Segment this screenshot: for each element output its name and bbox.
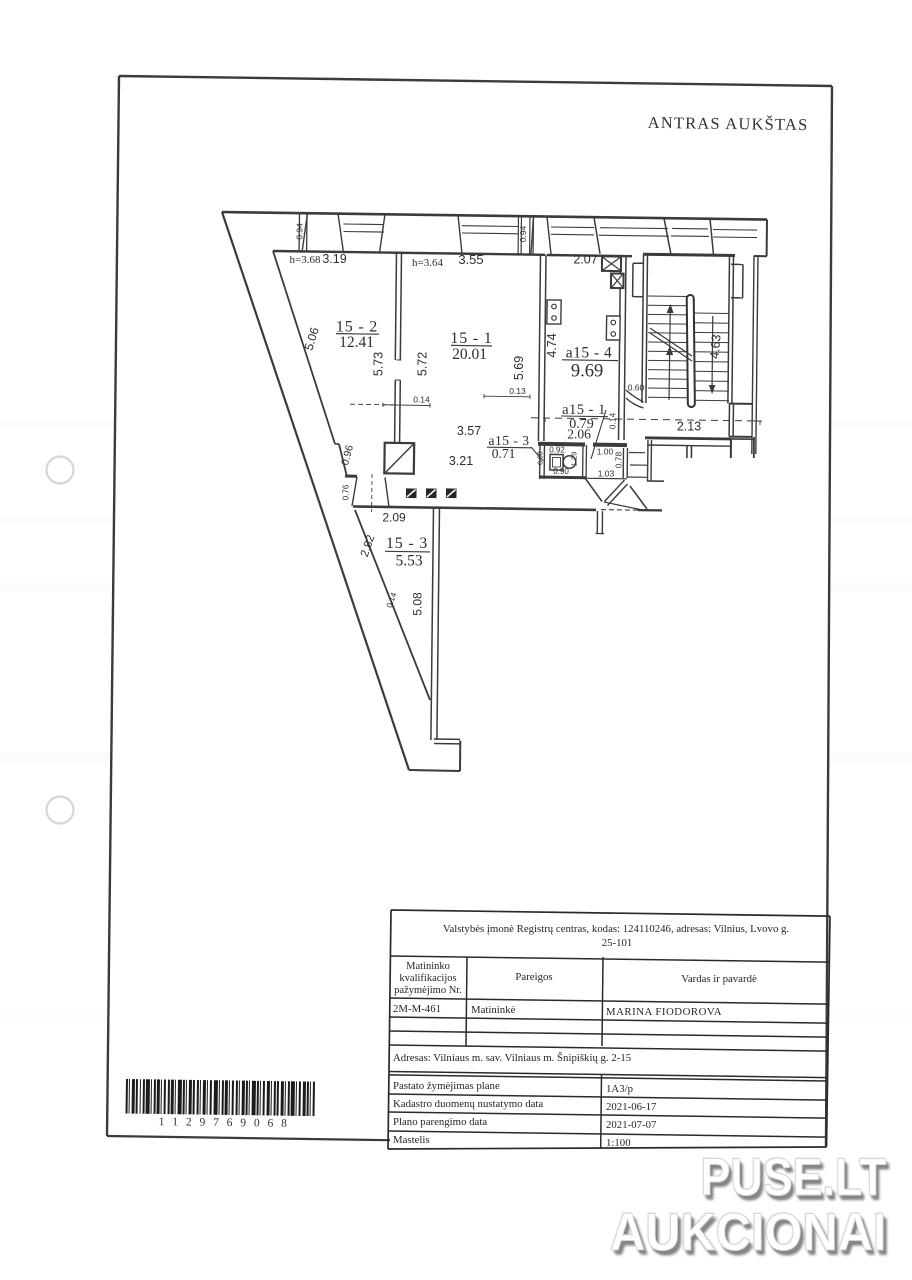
svg-text:0.94: 0.94 xyxy=(294,223,304,240)
svg-text:Matininko: Matininko xyxy=(406,961,450,972)
svg-text:2.13: 2.13 xyxy=(677,420,701,434)
svg-text:1 1 2 9 7 6 9 0 6 8: 1 1 2 9 7 6 9 0 6 8 xyxy=(159,1116,290,1130)
svg-text:15 - 2: 15 - 2 xyxy=(336,319,378,336)
svg-text:1A3/p: 1A3/p xyxy=(606,1083,633,1095)
svg-text:h=3.64: h=3.64 xyxy=(412,257,443,269)
svg-text:3.21: 3.21 xyxy=(449,454,473,468)
svg-text:0.14: 0.14 xyxy=(608,412,618,429)
svg-text:MARINA FIODOROVA: MARINA FIODOROVA xyxy=(606,1006,722,1018)
svg-text:2M-M-461: 2M-M-461 xyxy=(393,1003,441,1015)
svg-text:15 - 1: 15 - 1 xyxy=(450,330,492,347)
svg-text:5.69: 5.69 xyxy=(512,356,526,380)
svg-text:Mastelis: Mastelis xyxy=(393,1134,430,1146)
svg-text:0.71: 0.71 xyxy=(492,446,516,461)
svg-text:2.07: 2.07 xyxy=(573,253,597,267)
svg-text:3.19: 3.19 xyxy=(322,252,346,266)
svg-text:1.00: 1.00 xyxy=(597,447,614,457)
svg-text:12.41: 12.41 xyxy=(339,334,374,351)
svg-text:Pastato žymėjimas plane: Pastato žymėjimas plane xyxy=(393,1080,500,1092)
svg-text:Matininkė: Matininkė xyxy=(471,1004,516,1016)
svg-text:Valstybės įmonė Registrų centr: Valstybės įmonė Registrų centras, kodas:… xyxy=(443,923,789,935)
svg-text:0.90: 0.90 xyxy=(538,451,545,465)
svg-text:0.94: 0.94 xyxy=(518,225,528,242)
svg-text:kvalifikacijos: kvalifikacijos xyxy=(399,973,456,984)
svg-text:Plano parengimo data: Plano parengimo data xyxy=(393,1116,487,1128)
svg-text:h=3.68: h=3.68 xyxy=(290,254,321,266)
svg-text:1:100: 1:100 xyxy=(606,1137,631,1149)
svg-text:0.76: 0.76 xyxy=(342,484,351,500)
svg-text:5.72: 5.72 xyxy=(416,352,430,376)
svg-text:pažymėjimo Nr.: pažymėjimo Nr. xyxy=(394,985,462,996)
svg-text:1.29: 1.29 xyxy=(570,452,579,467)
svg-text:2021-07-07: 2021-07-07 xyxy=(606,1119,657,1131)
svg-text:Kadastro duomenų nustatymo dat: Kadastro duomenų nustatymo data xyxy=(393,1098,543,1110)
svg-text:0.92: 0.92 xyxy=(549,446,565,455)
svg-text:Adresas: Vilniaus m. sav. Viln: Adresas: Vilniaus m. sav. Vilniaus m. Šn… xyxy=(393,1052,631,1064)
svg-text:5.08: 5.08 xyxy=(411,592,425,616)
svg-text:a15 - 4: a15 - 4 xyxy=(566,345,613,362)
svg-text:Vardas ir pavardė: Vardas ir pavardė xyxy=(681,973,757,985)
svg-text:0.13: 0.13 xyxy=(509,386,526,396)
svg-text:2021-06-17: 2021-06-17 xyxy=(606,1101,657,1113)
svg-text:0.78: 0.78 xyxy=(614,451,624,468)
svg-text:1.03: 1.03 xyxy=(598,469,615,479)
svg-text:5.53: 5.53 xyxy=(395,553,422,570)
svg-text:25-101: 25-101 xyxy=(602,937,633,949)
svg-text:4.63: 4.63 xyxy=(707,334,723,360)
svg-text:Pareigos: Pareigos xyxy=(515,971,552,983)
svg-text:20.01: 20.01 xyxy=(452,346,487,363)
svg-text:4.74: 4.74 xyxy=(545,333,559,357)
svg-text:3.57: 3.57 xyxy=(457,424,481,438)
svg-text:15 - 3: 15 - 3 xyxy=(386,535,428,552)
svg-text:9.69: 9.69 xyxy=(571,362,603,382)
svg-text:5.73: 5.73 xyxy=(372,352,386,376)
svg-text:3.55: 3.55 xyxy=(458,252,483,267)
svg-text:0.14: 0.14 xyxy=(413,395,430,405)
svg-text:ANTRAS AUKŠTAS: ANTRAS AUKŠTAS xyxy=(648,113,809,134)
svg-text:0.60: 0.60 xyxy=(628,383,645,393)
svg-text:2.09: 2.09 xyxy=(382,511,406,525)
svg-text:2.06: 2.06 xyxy=(567,427,591,442)
svg-text:0.90: 0.90 xyxy=(553,467,569,476)
